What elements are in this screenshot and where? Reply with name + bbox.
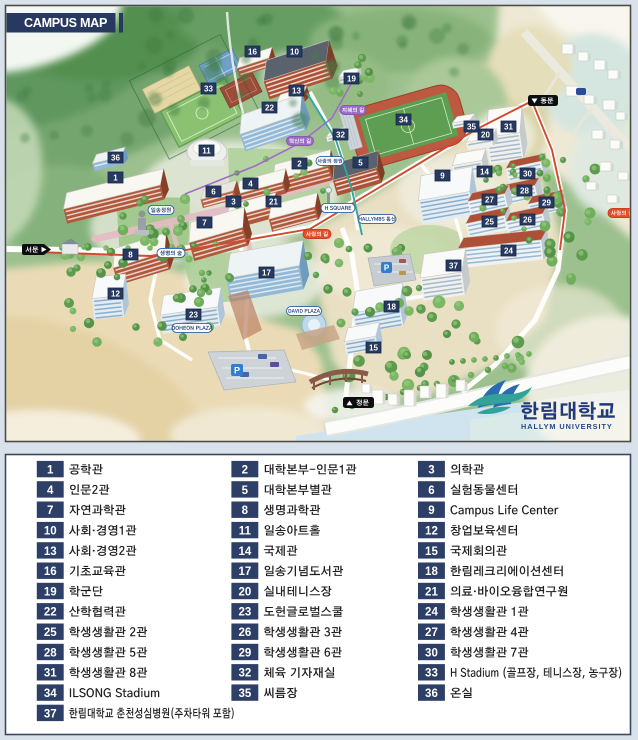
svg-text:23: 23 [189, 311, 198, 320]
svg-text:9: 9 [428, 505, 434, 517]
svg-text:18: 18 [387, 303, 396, 312]
svg-text:28: 28 [520, 187, 529, 196]
svg-text:31: 31 [44, 668, 57, 680]
svg-text:32: 32 [238, 668, 251, 680]
svg-text:20: 20 [481, 131, 490, 140]
svg-text:7: 7 [202, 219, 207, 228]
svg-text:2: 2 [297, 160, 302, 169]
svg-text:37: 37 [449, 262, 458, 271]
svg-text:29: 29 [542, 199, 551, 208]
svg-text:9: 9 [440, 172, 445, 181]
svg-text:22: 22 [44, 607, 57, 619]
svg-text:27: 27 [425, 627, 438, 639]
svg-text:10: 10 [290, 48, 299, 57]
svg-text:19: 19 [44, 586, 57, 598]
svg-text:36: 36 [425, 688, 438, 700]
svg-text:11: 11 [202, 147, 211, 156]
svg-text:12: 12 [111, 290, 120, 299]
svg-text:25: 25 [44, 627, 57, 639]
svg-text:34: 34 [399, 116, 408, 125]
svg-text:28: 28 [44, 647, 57, 659]
svg-text:25: 25 [485, 218, 494, 227]
svg-text:CAMPUS MAP: CAMPUS MAP [24, 16, 107, 30]
svg-text:3: 3 [428, 465, 434, 477]
svg-text:16: 16 [248, 48, 257, 57]
svg-text:27: 27 [485, 196, 494, 205]
svg-text:6: 6 [211, 188, 216, 197]
svg-text:8: 8 [242, 505, 249, 517]
svg-text:16: 16 [44, 566, 57, 578]
svg-text:6: 6 [428, 485, 434, 497]
svg-text:26: 26 [238, 627, 251, 639]
svg-text:26: 26 [523, 216, 532, 225]
svg-text:HALLYM UNIVERSITY: HALLYM UNIVERSITY [521, 422, 613, 431]
svg-text:30: 30 [523, 170, 532, 179]
svg-text:24: 24 [425, 607, 438, 619]
svg-text:5: 5 [242, 485, 249, 497]
svg-text:13: 13 [44, 546, 57, 558]
svg-text:37: 37 [44, 708, 57, 720]
svg-text:29: 29 [238, 647, 251, 659]
svg-text:12: 12 [425, 526, 438, 538]
svg-text:15: 15 [425, 546, 438, 558]
svg-text:32: 32 [336, 131, 345, 140]
svg-text:30: 30 [425, 647, 438, 659]
svg-text:33: 33 [425, 668, 438, 680]
svg-text:17: 17 [238, 566, 251, 578]
svg-text:13: 13 [292, 87, 301, 96]
svg-text:P: P [384, 264, 390, 273]
svg-text:34: 34 [44, 688, 57, 700]
svg-text:8: 8 [128, 251, 133, 260]
svg-text:5: 5 [358, 159, 363, 168]
svg-text:19: 19 [347, 75, 356, 84]
svg-text:18: 18 [425, 566, 438, 578]
svg-text:10: 10 [44, 526, 57, 538]
svg-text:3: 3 [231, 198, 236, 207]
svg-text:35: 35 [467, 123, 476, 132]
svg-text:1: 1 [47, 465, 54, 477]
svg-text:35: 35 [238, 688, 251, 700]
svg-text:20: 20 [238, 586, 251, 598]
svg-text:17: 17 [262, 269, 271, 278]
svg-text:14: 14 [480, 168, 489, 177]
svg-text:33: 33 [204, 85, 213, 94]
svg-text:11: 11 [239, 526, 252, 538]
svg-text:1: 1 [113, 174, 118, 183]
svg-text:2: 2 [242, 465, 248, 477]
svg-text:7: 7 [47, 505, 53, 517]
svg-text:23: 23 [238, 607, 251, 619]
svg-text:15: 15 [369, 344, 378, 353]
svg-text:21: 21 [425, 586, 438, 598]
svg-text:36: 36 [111, 154, 120, 163]
svg-text:24: 24 [504, 247, 513, 256]
svg-text:31: 31 [504, 123, 513, 132]
svg-text:P: P [234, 366, 240, 376]
svg-text:4: 4 [248, 180, 253, 189]
svg-text:22: 22 [265, 104, 274, 113]
svg-text:4: 4 [47, 485, 54, 497]
svg-text:21: 21 [269, 198, 278, 207]
svg-text:14: 14 [238, 546, 251, 558]
